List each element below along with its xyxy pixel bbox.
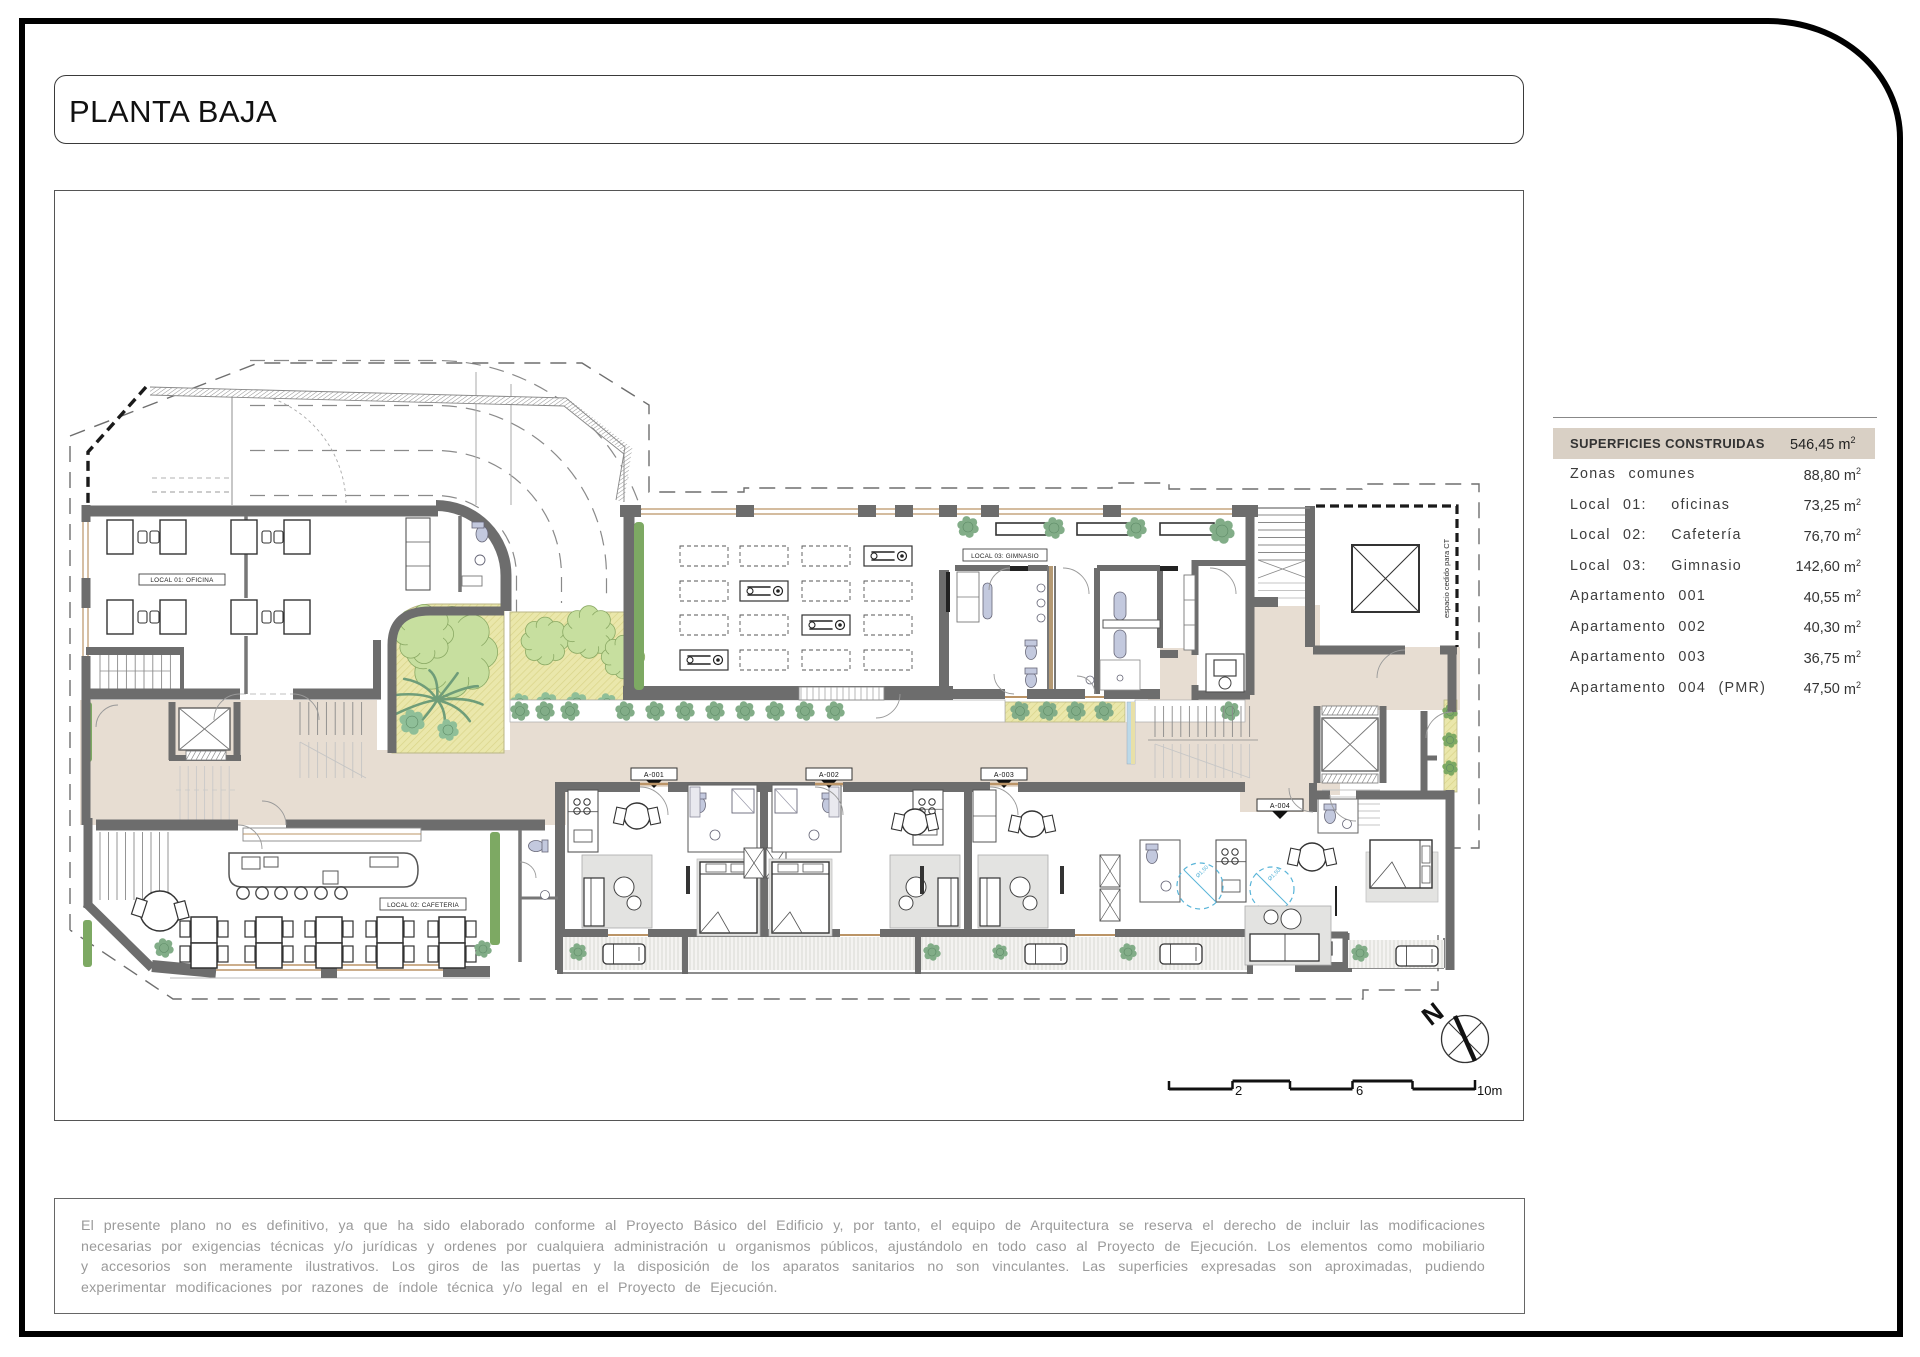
svg-text:Ø1,50: Ø1,50 [1195, 865, 1210, 880]
svg-text:A-002: A-002 [819, 772, 839, 779]
svg-text:LOCAL 03: GIMNASIO: LOCAL 03: GIMNASIO [971, 553, 1039, 560]
svg-text:LOCAL 02: CAFETERIA: LOCAL 02: CAFETERIA [387, 902, 459, 909]
svg-text:espacio cedido para CT: espacio cedido para CT [1442, 538, 1451, 618]
svg-text:A-001: A-001 [644, 772, 664, 779]
svg-text:A-003: A-003 [994, 772, 1014, 779]
svg-text:10m: 10m [1477, 1083, 1502, 1098]
svg-text:LOCAL 01: OFICINA: LOCAL 01: OFICINA [150, 577, 214, 584]
svg-text:2: 2 [1235, 1083, 1242, 1098]
svg-text:N: N [1416, 996, 1449, 1031]
svg-text:A-004: A-004 [1270, 803, 1290, 810]
svg-text:Ø1,50: Ø1,50 [1267, 868, 1282, 883]
svg-text:6: 6 [1356, 1083, 1363, 1098]
